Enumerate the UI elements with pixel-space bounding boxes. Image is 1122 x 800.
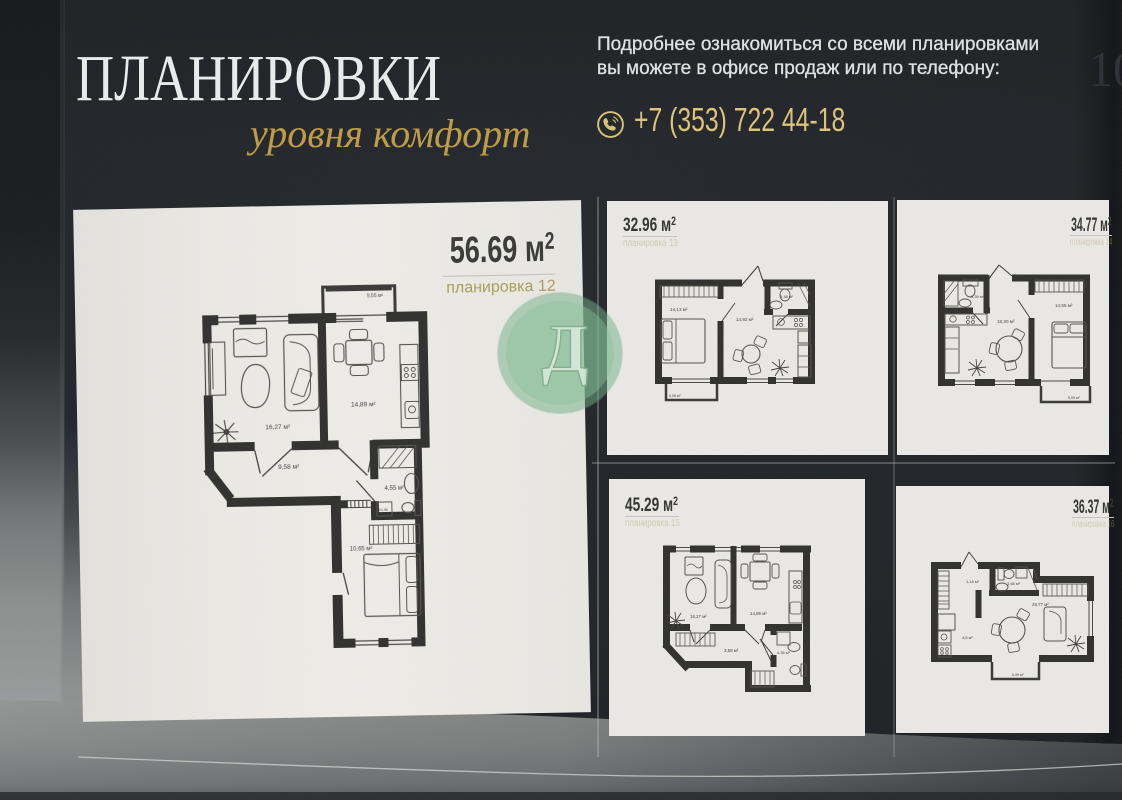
svg-text:3,58 м²: 3,58 м² [1007, 581, 1021, 586]
svg-text:14,13 м²: 14,13 м² [670, 307, 688, 312]
svg-text:16,27 м²: 16,27 м² [265, 424, 291, 431]
svg-text:16,27 м²: 16,27 м² [690, 614, 707, 619]
svg-text:5,08 м²: 5,08 м² [669, 394, 681, 398]
svg-text:4,55 м²: 4,55 м² [384, 486, 404, 492]
svg-text:3,38 м²: 3,38 м² [780, 294, 794, 299]
svg-text:16,30 м²: 16,30 м² [997, 319, 1015, 324]
svg-text:9,55 м²: 9,55 м² [367, 293, 384, 299]
svg-text:Д: Д [542, 310, 589, 386]
svg-text:5,09 м²: 5,09 м² [1068, 396, 1080, 400]
svg-text:4,35 м²: 4,35 м² [777, 650, 791, 655]
svg-text:14,89 м²: 14,89 м² [351, 401, 377, 408]
svg-text:14,92 м²: 14,92 м² [736, 317, 754, 322]
svg-text:01.06: 01.06 [379, 508, 388, 512]
svg-text:10,65 м²: 10,65 м² [350, 546, 373, 552]
svg-text:14,89 м²: 14,89 м² [750, 611, 767, 616]
svg-text:3,58 м²: 3,58 м² [724, 648, 739, 653]
svg-text:1,18 м²: 1,18 м² [966, 579, 980, 584]
svg-text:14,55 м²: 14,55 м² [1055, 303, 1073, 308]
svg-text:5,39 м²: 5,39 м² [1012, 673, 1024, 677]
svg-text:3,39 м²: 3,39 м² [971, 294, 985, 299]
svg-text:9,58 м²: 9,58 м² [278, 464, 300, 471]
svg-text:28,77 м²: 28,77 м² [1032, 602, 1049, 607]
svg-text:4,6 м²: 4,6 м² [962, 635, 973, 640]
